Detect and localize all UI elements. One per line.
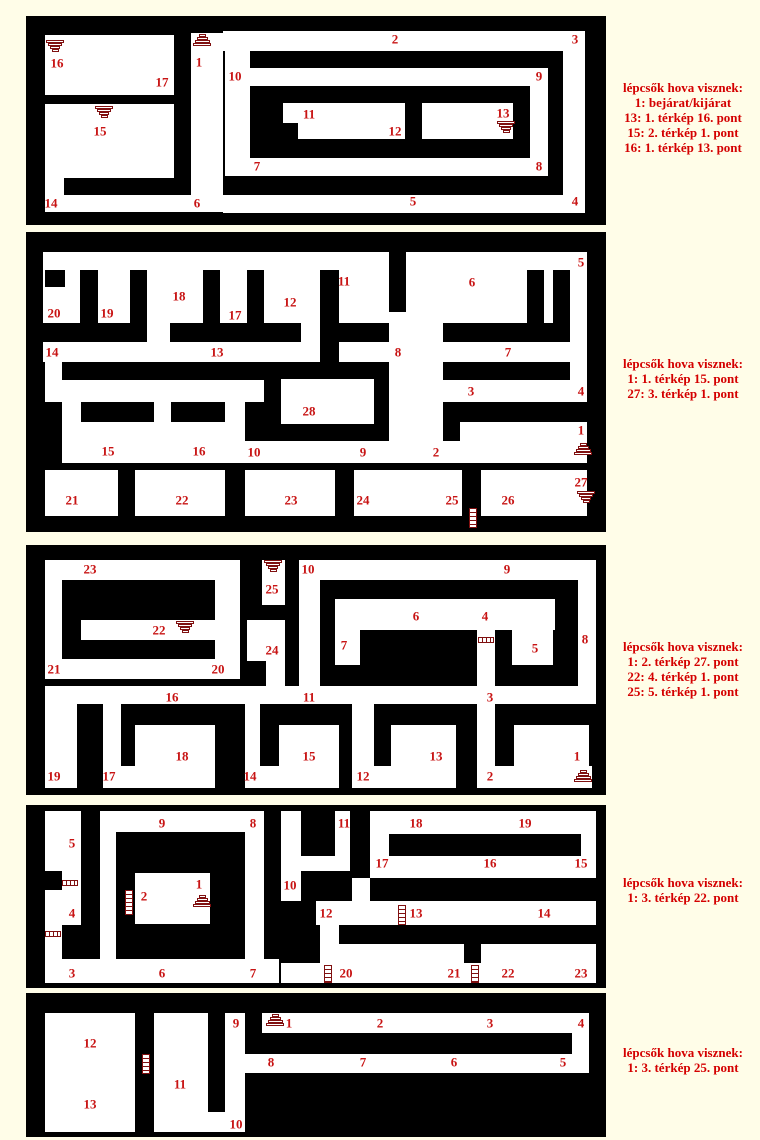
- point-label: 22: [502, 967, 515, 980]
- wall-rect: [45, 871, 62, 890]
- stairs-up-icon: [574, 770, 592, 784]
- point-label: 1: [196, 56, 203, 69]
- passage-rect: [250, 68, 548, 86]
- legend-line: 27: 3. térkép 1. pont: [606, 386, 760, 401]
- legend-title: lépcsők hova visznek:: [606, 875, 760, 890]
- stairs-legend-block-1: lépcsők hova visznek:1: bejárat/kijárat1…: [606, 80, 760, 155]
- point-label: 8: [536, 160, 543, 173]
- stairs-legend-block-2: lépcsők hova visznek:1: 1. térkép 15. po…: [606, 356, 760, 401]
- stairs-legend-block-5: lépcsők hova visznek:1: 3. térkép 25. po…: [606, 1045, 760, 1075]
- point-label: 20: [212, 663, 225, 676]
- passage-rect: [45, 380, 264, 402]
- point-label: 6: [413, 610, 420, 623]
- stairs-down-icon: [176, 621, 194, 635]
- point-label: 7: [360, 1056, 367, 1069]
- point-label: 8: [250, 817, 257, 830]
- passage-rect: [250, 158, 548, 176]
- point-label: 23: [285, 494, 298, 507]
- legend-line: 15: 2. térkép 1. pont: [606, 125, 760, 140]
- ladder-vertical-icon: [125, 890, 133, 915]
- point-label: 13: [430, 750, 443, 763]
- passage-rect: [245, 1054, 589, 1073]
- point-label: 15: [94, 125, 107, 138]
- point-label: 15: [102, 445, 115, 458]
- ladder-horizontal-icon: [62, 880, 78, 886]
- point-label: 11: [174, 1078, 186, 1091]
- point-label: 14: [45, 197, 58, 210]
- point-label: 25: [266, 583, 279, 596]
- legend-line: 1: bejárat/kijárat: [606, 95, 760, 110]
- map-panel-1: 1617115146231098711121354: [26, 16, 606, 225]
- point-label: 7: [505, 346, 512, 359]
- stairs-down-icon: [46, 40, 64, 54]
- point-label: 3: [468, 385, 475, 398]
- passage-rect: [223, 31, 585, 51]
- point-label: 5: [578, 256, 585, 269]
- passage-rect: [299, 560, 320, 686]
- wall-rect: [62, 925, 92, 959]
- passage-rect: [443, 380, 587, 402]
- legend-line: 1: 3. térkép 25. pont: [606, 1060, 760, 1075]
- passage-rect: [316, 901, 596, 925]
- legend-title: lépcsők hova visznek:: [606, 80, 760, 95]
- point-label: 1: [196, 878, 203, 891]
- point-label: 13: [410, 907, 423, 920]
- legend-title: lépcsők hova visznek:: [606, 639, 760, 654]
- stairs-legend-block-3: lépcsők hova visznek:1: 2. térkép 27. po…: [606, 639, 760, 699]
- point-label: 4: [482, 610, 489, 623]
- stairs-down-icon: [577, 491, 595, 505]
- passage-rect: [339, 944, 464, 963]
- point-label: 19: [101, 307, 114, 320]
- passage-rect: [62, 402, 81, 422]
- passage-rect: [154, 402, 171, 463]
- wall-rect: [130, 270, 147, 323]
- point-label: 20: [340, 967, 353, 980]
- passage-rect: [45, 1013, 135, 1132]
- map-panel-5: 12131191012348765: [26, 993, 606, 1137]
- point-label: 4: [572, 195, 579, 208]
- point-label: 23: [575, 967, 588, 980]
- point-label: 6: [451, 1056, 458, 1069]
- passage-rect: [578, 560, 596, 686]
- point-label: 6: [469, 276, 476, 289]
- point-label: 18: [173, 290, 186, 303]
- point-label: 7: [254, 160, 261, 173]
- passage-rect: [320, 925, 339, 968]
- passage-rect: [262, 1013, 589, 1033]
- point-label: 24: [357, 494, 370, 507]
- point-label: 2: [392, 33, 399, 46]
- point-label: 4: [578, 1017, 585, 1030]
- point-label: 14: [244, 770, 257, 783]
- point-label: 9: [360, 446, 367, 459]
- point-label: 21: [48, 663, 61, 676]
- legend-line: 25: 5. térkép 1. pont: [606, 684, 760, 699]
- wall-rect: [80, 270, 98, 323]
- point-label: 24: [266, 644, 279, 657]
- point-label: 18: [176, 750, 189, 763]
- point-label: 13: [497, 107, 510, 120]
- point-label: 5: [560, 1056, 567, 1069]
- point-label: 13: [211, 346, 224, 359]
- point-label: 11: [338, 275, 350, 288]
- passage-rect: [223, 195, 585, 213]
- legend-line: 13: 1. térkép 16. pont: [606, 110, 760, 125]
- point-label: 8: [268, 1056, 275, 1069]
- ladder-vertical-icon: [398, 905, 406, 925]
- point-label: 11: [338, 817, 350, 830]
- passage-rect: [391, 725, 456, 788]
- ladder-vertical-icon: [471, 965, 479, 983]
- point-label: 8: [582, 633, 589, 646]
- legend-title: lépcsők hova visznek:: [606, 356, 760, 371]
- point-label: 7: [341, 639, 348, 652]
- point-label: 9: [536, 70, 543, 83]
- wall-rect: [527, 270, 544, 323]
- point-label: 3: [69, 967, 76, 980]
- legend-line: 22: 4. térkép 1. pont: [606, 669, 760, 684]
- legend-line: 16: 1. térkép 13. pont: [606, 140, 760, 155]
- passage-rect: [147, 323, 170, 342]
- stairs-up-icon: [574, 443, 592, 457]
- point-label: 19: [519, 817, 532, 830]
- point-label: 10: [302, 563, 315, 576]
- point-label: 10: [230, 1118, 243, 1131]
- passage-rect: [45, 560, 240, 580]
- point-label: 21: [66, 494, 79, 507]
- point-label: 18: [410, 817, 423, 830]
- ladder-vertical-icon: [469, 508, 477, 528]
- stairs-up-icon: [193, 34, 211, 48]
- passage-rect: [477, 630, 495, 788]
- dungeon-maps-page: 1617115146231098711121354201918171211651…: [0, 0, 760, 1140]
- point-label: 2: [487, 770, 494, 783]
- passage-rect: [481, 470, 587, 516]
- point-label: 17: [156, 76, 169, 89]
- legend-line: 1: 3. térkép 22. pont: [606, 890, 760, 905]
- passage-rect: [481, 944, 596, 963]
- point-label: 27: [575, 476, 588, 489]
- point-label: 12: [84, 1037, 97, 1050]
- point-label: 16: [51, 57, 64, 70]
- ladder-horizontal-icon: [478, 637, 494, 643]
- wall-rect: [45, 270, 65, 287]
- passage-rect: [299, 560, 596, 580]
- passage-rect: [301, 323, 320, 342]
- stairs-down-icon: [264, 560, 282, 574]
- point-label: 14: [538, 907, 551, 920]
- point-label: 5: [532, 642, 539, 655]
- point-label: 6: [194, 197, 201, 210]
- wall-rect: [203, 270, 220, 323]
- point-label: 6: [159, 967, 166, 980]
- point-label: 25: [446, 494, 459, 507]
- passage-rect: [81, 620, 215, 640]
- passage-rect: [45, 686, 596, 704]
- point-label: 1: [286, 1017, 293, 1030]
- point-label: 1: [574, 750, 581, 763]
- passage-rect: [460, 422, 587, 441]
- point-label: 3: [487, 691, 494, 704]
- point-label: 12: [320, 907, 333, 920]
- passage-rect: [100, 811, 264, 832]
- point-label: 19: [48, 770, 61, 783]
- point-label: 5: [69, 837, 76, 850]
- stairs-legend-block-4: lépcsők hova visznek:1: 3. térkép 22. po…: [606, 875, 760, 905]
- passage-rect: [154, 1013, 208, 1132]
- point-label: 3: [572, 33, 579, 46]
- point-label: 10: [229, 70, 242, 83]
- point-label: 16: [166, 691, 179, 704]
- point-label: 15: [303, 750, 316, 763]
- map-panel-2: 2019181712116514138734151610921282122232…: [26, 232, 606, 532]
- passage-rect: [45, 195, 205, 212]
- legend-title: lépcsők hova visznek:: [606, 1045, 760, 1060]
- point-label: 14: [46, 346, 59, 359]
- stairs-down-icon: [95, 106, 113, 120]
- passage-rect: [100, 811, 116, 959]
- ladder-vertical-icon: [142, 1054, 150, 1074]
- stairs-up-icon: [266, 1014, 284, 1028]
- wall-rect: [389, 834, 581, 856]
- point-label: 10: [284, 879, 297, 892]
- point-label: 11: [303, 108, 315, 121]
- passage-rect: [45, 470, 118, 516]
- point-label: 5: [410, 195, 417, 208]
- point-label: 22: [176, 494, 189, 507]
- point-label: 11: [303, 691, 315, 704]
- point-label: 26: [502, 494, 515, 507]
- point-label: 17: [376, 857, 389, 870]
- wall-rect: [553, 270, 570, 342]
- point-label: 7: [250, 967, 257, 980]
- point-label: 12: [284, 296, 297, 309]
- passage-rect: [245, 811, 264, 959]
- point-label: 28: [303, 405, 316, 418]
- point-label: 12: [389, 125, 402, 138]
- point-label: 4: [69, 907, 76, 920]
- point-label: 2: [377, 1017, 384, 1030]
- map-panel-4: 5498111021181917161512131436720212223: [26, 805, 606, 988]
- stairs-up-icon: [193, 895, 211, 909]
- stairs-down-icon: [497, 121, 515, 135]
- passage-rect: [283, 103, 405, 123]
- passage-rect: [335, 599, 555, 630]
- point-label: 3: [487, 1017, 494, 1030]
- wall-rect: [389, 248, 406, 312]
- point-label: 9: [159, 817, 166, 830]
- passage-rect: [281, 379, 374, 424]
- point-label: 12: [357, 770, 370, 783]
- point-label: 13: [84, 1098, 97, 1111]
- legend-line: 1: 1. térkép 15. pont: [606, 371, 760, 386]
- point-label: 17: [229, 309, 242, 322]
- point-label: 22: [153, 624, 166, 637]
- point-label: 21: [448, 967, 461, 980]
- point-label: 10: [248, 446, 261, 459]
- point-label: 17: [103, 770, 116, 783]
- point-label: 20: [48, 307, 61, 320]
- passage-rect: [245, 441, 587, 463]
- point-label: 16: [193, 445, 206, 458]
- point-label: 9: [233, 1017, 240, 1030]
- point-label: 2: [141, 890, 148, 903]
- point-label: 8: [395, 346, 402, 359]
- stairs-legend-column: lépcsők hova visznek:1: bejárat/kijárat1…: [606, 0, 760, 1140]
- point-label: 9: [504, 563, 511, 576]
- wall-rect: [320, 270, 339, 362]
- legend-line: 1: 2. térkép 27. pont: [606, 654, 760, 669]
- passage-rect: [225, 402, 245, 463]
- passage-rect: [43, 252, 587, 323]
- point-label: 23: [84, 563, 97, 576]
- passage-rect: [225, 1013, 245, 1132]
- wall-rect: [247, 270, 264, 323]
- map-panel-3: 2321202225241096745816113191718141512132…: [26, 545, 606, 795]
- point-label: 4: [578, 385, 585, 398]
- ladder-horizontal-icon: [45, 931, 61, 937]
- point-label: 15: [575, 857, 588, 870]
- point-label: 2: [433, 446, 440, 459]
- point-label: 16: [484, 857, 497, 870]
- passage-rect: [563, 31, 585, 213]
- point-label: 1: [578, 424, 585, 437]
- ladder-vertical-icon: [324, 965, 332, 983]
- passage-rect: [208, 1112, 225, 1132]
